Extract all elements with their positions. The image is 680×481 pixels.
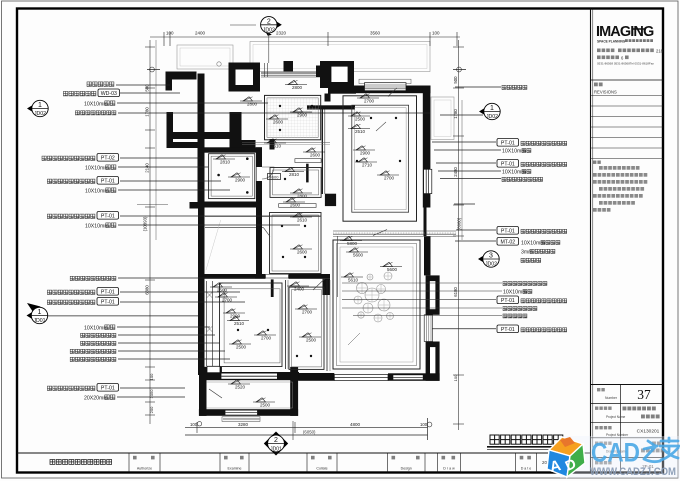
svg-text:100: 100	[190, 422, 198, 427]
svg-text:10X10mm: 10X10mm	[85, 166, 109, 172]
svg-text:PT-01: PT-01	[501, 228, 515, 234]
svg-text:1: 1	[38, 102, 42, 109]
svg-text:2900: 2900	[235, 178, 246, 183]
svg-text:5610: 5610	[348, 278, 359, 283]
svg-text:2600: 2600	[297, 250, 308, 255]
svg-text:2700: 2700	[261, 336, 272, 341]
svg-text:SPACE PLANNING: SPACE PLANNING	[597, 40, 626, 44]
svg-text:2900: 2900	[360, 151, 371, 156]
svg-text:Project Name: Project Name	[606, 415, 626, 419]
svg-text:37: 37	[637, 387, 651, 402]
svg-text:2520: 2520	[235, 385, 246, 390]
svg-text:(8960): (8960)	[457, 217, 462, 230]
svg-text:10X10mm: 10X10mm	[85, 224, 109, 230]
svg-text:Examine: Examine	[228, 467, 242, 471]
svg-text:10X10mm: 10X10mm	[84, 326, 108, 332]
svg-text:PT-02: PT-02	[101, 155, 115, 161]
svg-text:10X10mm: 10X10mm	[84, 102, 108, 108]
svg-text:2500: 2500	[355, 117, 366, 122]
svg-text:6380: 6380	[145, 285, 150, 295]
svg-text:WD-03: WD-03	[101, 91, 117, 97]
svg-text:2810: 2810	[220, 160, 231, 165]
svg-text:2700: 2700	[302, 310, 313, 315]
svg-text:5600: 5600	[353, 253, 364, 258]
svg-text:10X10mm: 10X10mm	[85, 189, 109, 195]
svg-text:JD02: JD02	[486, 114, 498, 120]
svg-text:(10893): (10893)	[143, 216, 148, 231]
svg-text:2480: 2480	[453, 167, 458, 177]
svg-text:4600: 4600	[270, 174, 280, 179]
svg-text:100: 100	[149, 373, 154, 380]
svg-text:5600: 5600	[387, 267, 398, 272]
svg-text:Design: Design	[401, 467, 412, 471]
svg-text:PT-01: PT-01	[501, 327, 515, 333]
svg-text:Authorize: Authorize	[137, 467, 152, 471]
svg-text:2710: 2710	[362, 163, 373, 168]
svg-text:Collate: Collate	[316, 467, 327, 471]
svg-text:PT-01: PT-01	[501, 161, 515, 167]
svg-text:1: 1	[38, 309, 42, 316]
svg-text:500: 500	[453, 76, 458, 84]
svg-text:2400: 2400	[294, 287, 305, 292]
svg-text:JD01: JD01	[270, 447, 282, 453]
svg-text:PT-01: PT-01	[101, 213, 115, 219]
svg-text:2810: 2810	[289, 172, 300, 177]
svg-text:100: 100	[453, 374, 458, 381]
svg-text:218: 218	[656, 49, 664, 54]
svg-text:100: 100	[432, 31, 440, 36]
svg-text:2510: 2510	[355, 129, 366, 134]
svg-text:MT-02: MT-02	[500, 239, 515, 245]
svg-text:2610: 2610	[297, 218, 308, 223]
svg-text:1780: 1780	[453, 109, 458, 119]
svg-text:5800: 5800	[347, 241, 358, 246]
svg-text:JD01: JD01	[33, 318, 45, 324]
svg-text:WWW.CADZJ.COM: WWW.CADZJ.COM	[590, 466, 676, 478]
svg-text:PT-01: PT-01	[101, 385, 115, 391]
svg-text:20X20mm: 20X20mm	[84, 396, 108, 402]
svg-text:CX130201: CX130201	[637, 429, 660, 435]
svg-text:IMAGING: IMAGING	[596, 24, 654, 40]
svg-text:100: 100	[420, 422, 428, 427]
svg-text:3mm: 3mm	[521, 250, 533, 256]
svg-text:CAD: CAD	[591, 438, 640, 468]
svg-text:PT-01: PT-01	[101, 289, 115, 295]
svg-text:2600: 2600	[273, 120, 284, 125]
svg-text:2900: 2900	[230, 314, 241, 319]
svg-text:REVISIONS: REVISIONS	[594, 90, 617, 95]
svg-text:2140: 2140	[145, 163, 150, 173]
svg-text:JD02: JD02	[263, 27, 275, 33]
svg-text:(6050): (6050)	[303, 430, 316, 435]
svg-text:2510: 2510	[234, 321, 245, 326]
svg-text:1: 1	[490, 105, 494, 112]
svg-text:4800: 4800	[350, 422, 361, 427]
svg-text:D a t e: D a t e	[521, 467, 532, 471]
svg-text:2500: 2500	[236, 345, 247, 350]
svg-text:6180: 6180	[453, 287, 458, 297]
svg-text:JD02: JD02	[485, 262, 497, 268]
svg-text:3: 3	[489, 253, 493, 260]
svg-text:2: 2	[274, 437, 278, 444]
svg-text:3560: 3560	[370, 31, 381, 36]
svg-text:2800: 2800	[247, 102, 258, 107]
svg-text:2500: 2500	[306, 338, 317, 343]
svg-text:1780: 1780	[145, 107, 150, 117]
svg-text:PT-01: PT-01	[501, 298, 515, 304]
svg-text:200: 200	[149, 406, 154, 413]
svg-text:100: 100	[166, 31, 174, 36]
svg-text:2600: 2600	[310, 153, 321, 158]
svg-text:2400: 2400	[195, 31, 206, 36]
svg-text:2500: 2500	[260, 403, 271, 408]
svg-text:D r a w: D r a w	[443, 467, 455, 471]
svg-text:PT-01: PT-01	[101, 299, 115, 305]
svg-text:2320: 2320	[276, 31, 287, 36]
svg-text:0531-86568 0531-86568Tel 053: 0531-86568 0531-86568Tel 0531-8618Fax	[597, 62, 654, 66]
svg-text:2700: 2700	[364, 99, 375, 104]
svg-text:2800: 2800	[297, 194, 308, 199]
svg-text:2700: 2700	[384, 176, 395, 181]
svg-text:PT-01: PT-01	[501, 140, 515, 146]
svg-text:Number: Number	[605, 396, 618, 400]
svg-text:3280: 3280	[238, 422, 249, 427]
svg-text:2800: 2800	[292, 85, 303, 90]
svg-text:2610: 2610	[271, 144, 282, 149]
svg-text:JD02: JD02	[34, 111, 46, 117]
svg-text:PT-01: PT-01	[101, 178, 115, 184]
svg-text:2600: 2600	[290, 203, 301, 208]
svg-text:2: 2	[267, 18, 271, 25]
